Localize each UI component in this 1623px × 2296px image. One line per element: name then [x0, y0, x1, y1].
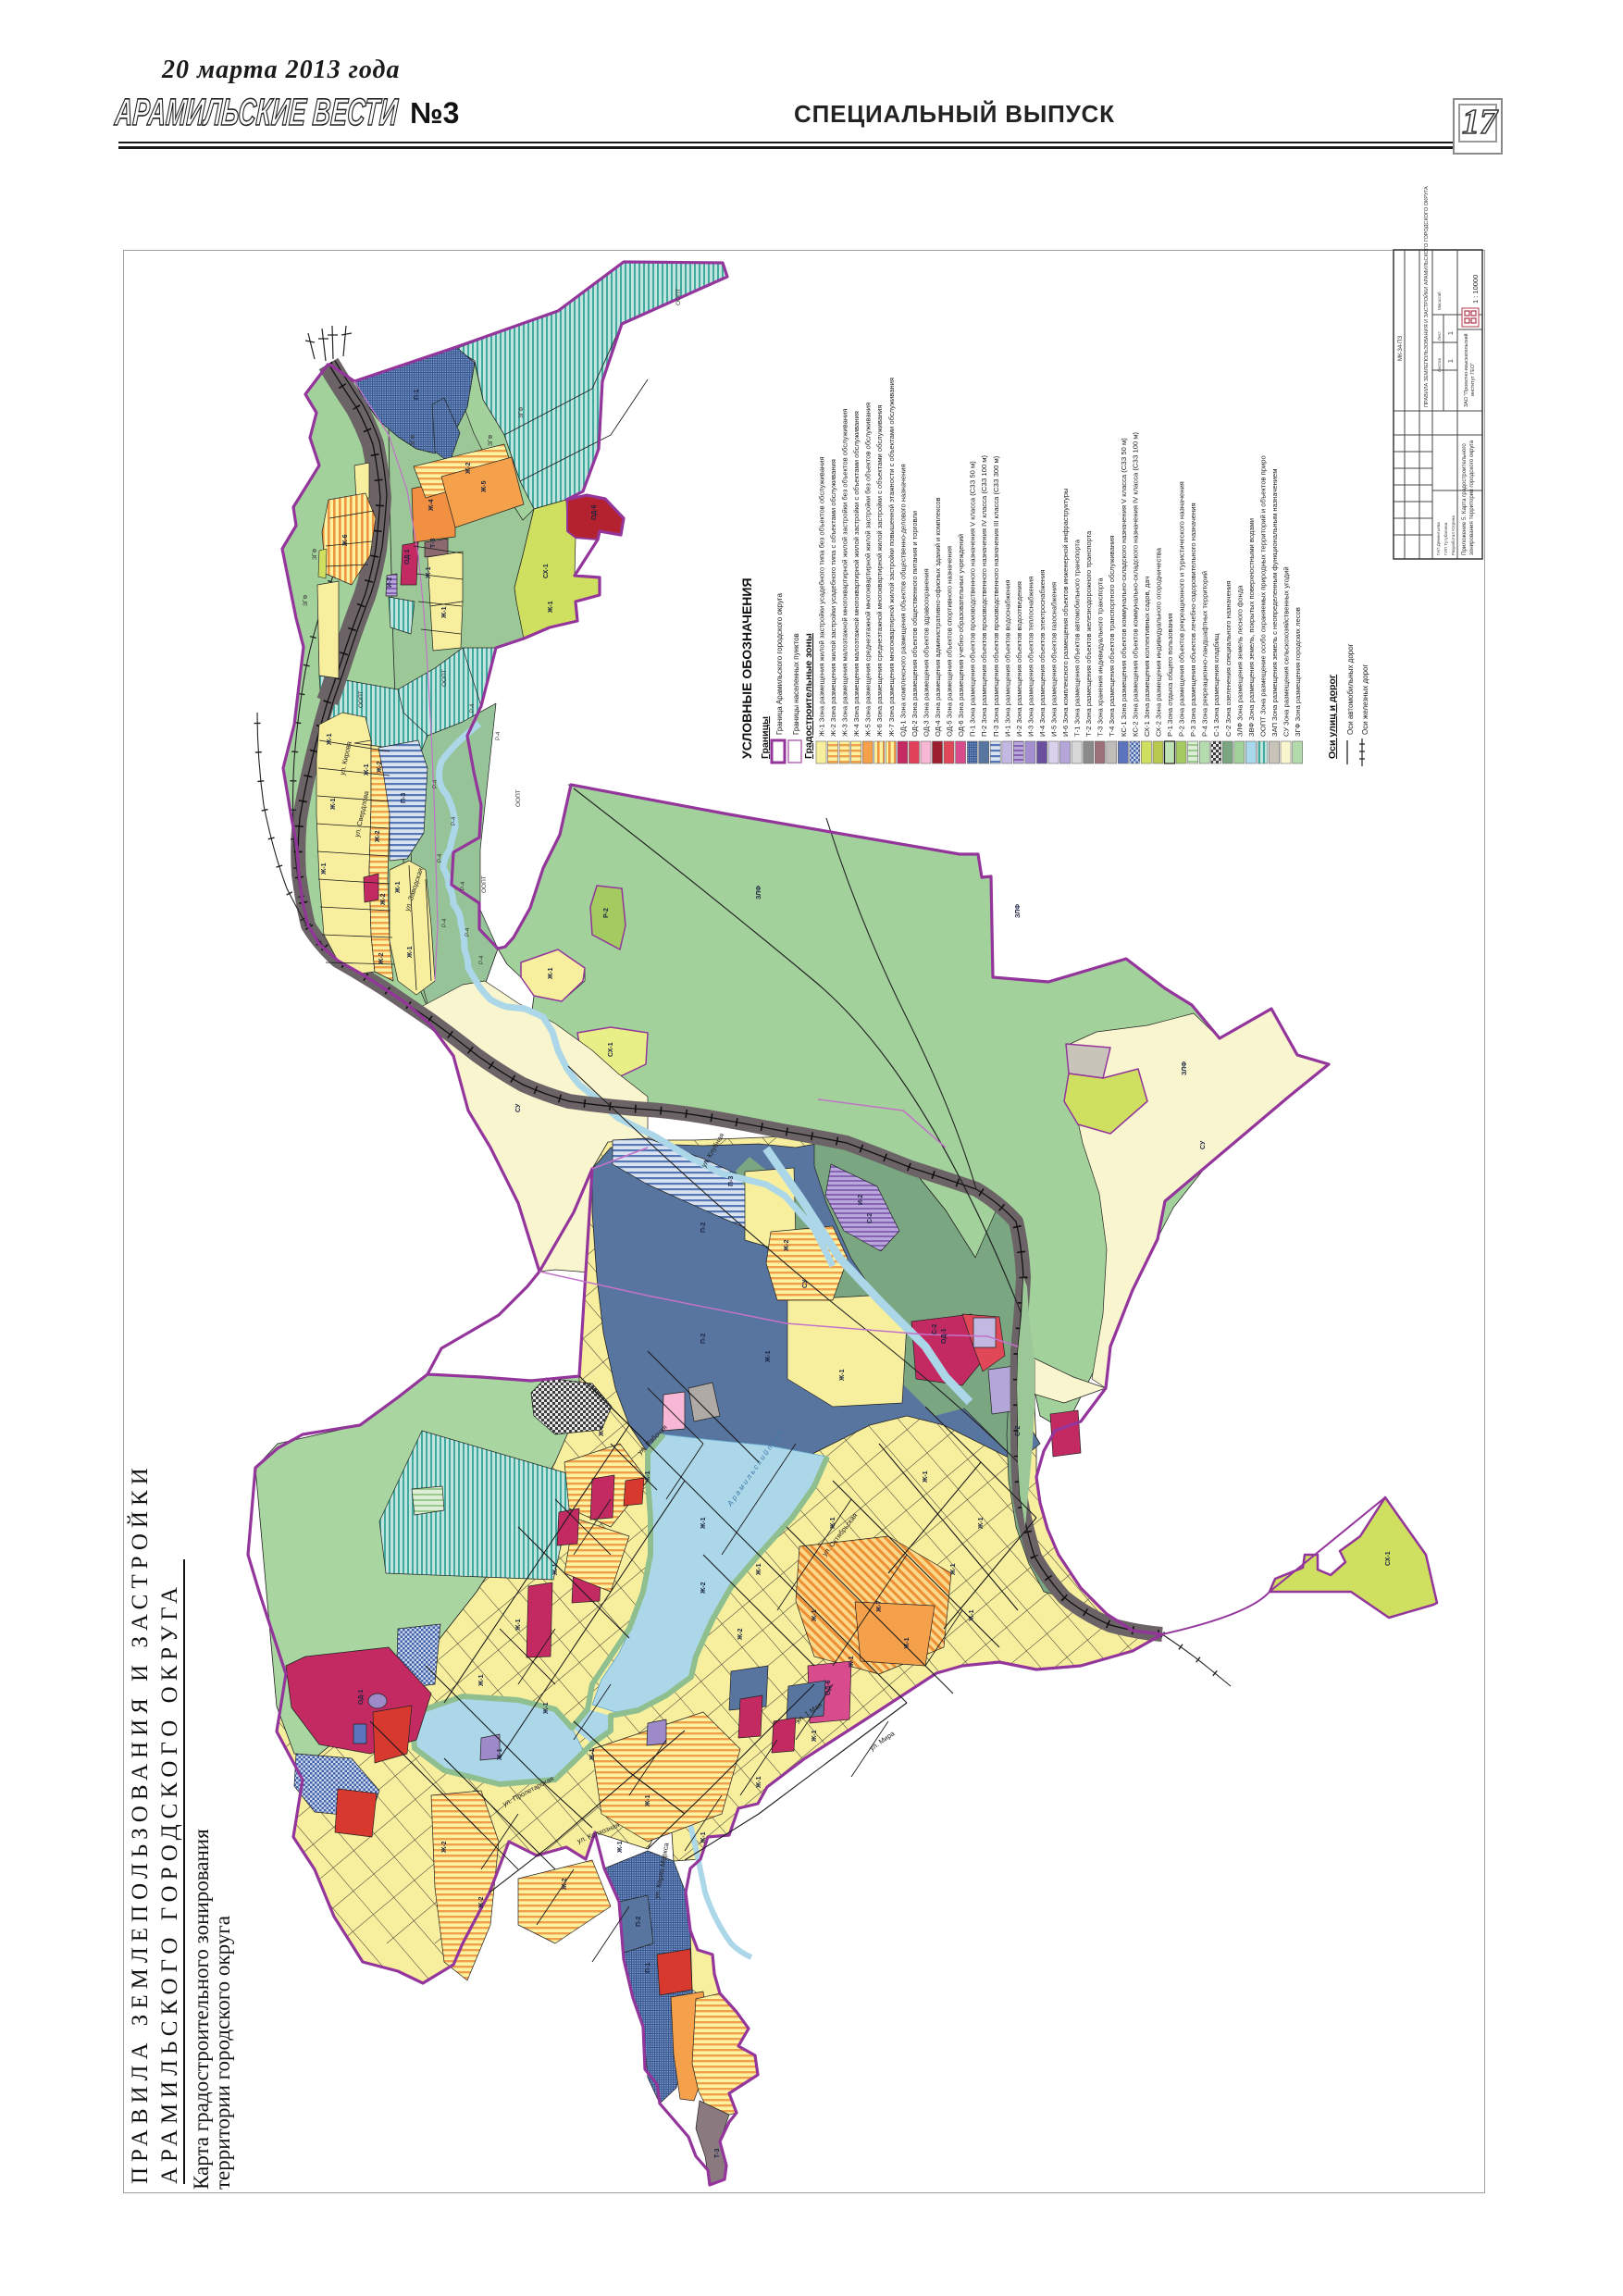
- svg-text:Ж-6: Ж-6: [342, 534, 349, 547]
- svg-text:Ж-4: Ж-4: [428, 499, 435, 512]
- svg-text:Граница Арамильского городског: Граница Арамильского городского округа: [775, 593, 784, 736]
- svg-text:П-1: П-1: [414, 390, 420, 400]
- svg-text:СХ-1: СХ-1: [1385, 1551, 1392, 1566]
- svg-text:Оси автомобильных дорог: Оси автомобильных дорог: [1346, 643, 1355, 735]
- svg-text:ЗЛФ Зона размещения земель лес: ЗЛФ Зона размещения земель лесного фонда: [1235, 585, 1244, 737]
- svg-text:ОД-4 Зона размещения администр: ОД-4 Зона размещения административно-офи…: [934, 497, 942, 737]
- svg-text:ул. Мира: ул. Мира: [868, 1729, 897, 1753]
- svg-text:Т-4 Зона размещения объектов т: Т-4 Зона размещения объектов транспортно…: [1108, 536, 1116, 737]
- svg-text:П-2 Зона размещения объектов: П-2 Зона размещения объектов производств…: [980, 454, 988, 737]
- svg-text:Ж-1: Ж-1: [617, 1841, 624, 1854]
- svg-text:Р-4: Р-4: [433, 779, 439, 788]
- svg-text:П-2: П-2: [700, 1334, 707, 1344]
- svg-text:Ж-2: Ж-2: [737, 1628, 744, 1641]
- svg-text:Ж-1: Ж-1: [645, 1794, 651, 1807]
- svg-text:Ж-1: Ж-1: [599, 1424, 605, 1437]
- svg-text:Ж-1: Ж-1: [765, 1350, 772, 1363]
- svg-text:Ж-2: Ж-2: [375, 830, 381, 843]
- svg-text:КС-2 Зона размещения объектов: КС-2 Зона размещения объектов коммунальн…: [1131, 431, 1139, 737]
- svg-text:ГАП Дементьева: ГАП Дементьева: [1436, 522, 1441, 555]
- svg-text:Ж-1 Зона размещения жилой заст: Ж-1 Зона размещения жилой застройки усад…: [818, 457, 826, 737]
- svg-text:Ж-1: Ж-1: [478, 1674, 485, 1687]
- svg-text:Ж-1: Ж-1: [830, 1517, 836, 1530]
- svg-text:Р-4 Зона рекреационно-ландшафт: Р-4 Зона рекреационно-ландшафтных террит…: [1201, 571, 1209, 737]
- svg-text:Ж-7 Зона размещения многокварт: Ж-7 Зона размещения многоквартирной жило…: [887, 378, 896, 737]
- svg-text:П-2: П-2: [636, 1917, 642, 1927]
- svg-text:1 : 10000: 1 : 10000: [1471, 275, 1480, 304]
- svg-text:Ж-1: Ж-1: [543, 1702, 550, 1715]
- svg-text:П-1: П-1: [645, 1963, 651, 1973]
- svg-text:Ж-1: Ж-1: [395, 881, 402, 894]
- svg-text:Ж-7: Ж-7: [876, 1600, 883, 1613]
- svg-text:КС-1 Зона размещения объектов: КС-1 Зона размещения объектов коммунальн…: [1120, 438, 1128, 737]
- svg-text:Ж-1: Ж-1: [589, 1748, 596, 1761]
- svg-text:Масштаб: Масштаб: [1437, 292, 1442, 310]
- svg-text:ООПТ: ООПТ: [481, 875, 488, 893]
- svg-text:И-2: И-2: [858, 1195, 864, 1205]
- svg-text:П-3 Зона размещения объектов: П-3 Зона размещения объектов производств…: [992, 455, 1000, 737]
- svg-text:Ж-1: Ж-1: [923, 1471, 929, 1483]
- svg-text:ОД-1: ОД-1: [358, 1689, 365, 1705]
- svg-text:ООПТ: ООПТ: [441, 669, 448, 687]
- svg-text:Т-3: Т-3: [430, 538, 437, 548]
- svg-text:Р-1 Зона отдыха общего пользов: Р-1 Зона отдыха общего пользования: [1166, 614, 1174, 737]
- svg-text:Границы населенных пунктов: Границы населенных пунктов: [792, 633, 800, 735]
- svg-text:Лист: Лист: [1437, 330, 1442, 341]
- svg-text:Ж-1: Ж-1: [515, 1619, 522, 1632]
- svg-text:Р-4: Р-4: [465, 927, 471, 937]
- svg-text:Ж-1: Ж-1: [497, 1748, 503, 1761]
- svg-text:И-1 Зона размещения объектов в: И-1 Зона размещения объектов водоснабжен…: [1003, 580, 1011, 737]
- svg-text:Ж-1: Ж-1: [700, 1517, 707, 1530]
- svg-text:С-2: С-2: [867, 1213, 873, 1223]
- svg-text:Ж-1: Ж-1: [969, 1609, 975, 1622]
- svg-text:ЗЛФ: ЗЛФ: [1015, 904, 1022, 918]
- svg-text:Ж-1: Ж-1: [849, 1656, 855, 1669]
- svg-text:П-2: П-2: [700, 1222, 707, 1233]
- svg-text:ОД-2 Зона размещения объектов: ОД-2 Зона размещения объектов общественн…: [911, 511, 919, 737]
- svg-text:Границы: Границы: [760, 716, 771, 759]
- svg-text:Т-2 Зона размещения объектов ж: Т-2 Зона размещения объектов железнодоро…: [1084, 530, 1093, 737]
- svg-text:Ж-1: Ж-1: [364, 763, 370, 776]
- svg-text:Ж-2: Ж-2: [784, 1239, 790, 1252]
- svg-text:ЗГФ: ЗГФ: [312, 549, 318, 560]
- svg-text:Т-3 Зона хранения индивидуальн: Т-3 Зона хранения индивидуального трансп…: [1096, 577, 1105, 737]
- svg-text:СУ Зона размещения сельскохозя: СУ Зона размещения сельскохозяйственных …: [1282, 566, 1291, 737]
- svg-text:И-3 Зона размещения объектов т: И-3 Зона размещения объектов теплоснабже…: [1026, 577, 1035, 737]
- svg-text:ОД-3 Зона размещения объектов: ОД-3 Зона размещения объектов здравоохра…: [923, 568, 931, 737]
- svg-text:институт ГЕО": институт ГЕО": [1470, 363, 1476, 396]
- svg-text:ЗАО "Проектно-изыскательский: ЗАО "Проектно-изыскательский: [1463, 333, 1469, 407]
- svg-text:Ж-3 Зона размещения малоэтажно: Ж-3 Зона размещения малоэтажной многоква…: [841, 409, 849, 737]
- svg-text:Разработал Югрина: Разработал Югрина: [1451, 515, 1456, 555]
- svg-text:Т-1 Зона размещения объектов а: Т-1 Зона размещения объектов автомобильн…: [1073, 539, 1082, 737]
- svg-text:С-2 Зона озеленения специально: С-2 Зона озеленения специального назначе…: [1224, 581, 1233, 737]
- svg-text:ЗАП Зона размещения земель с н: ЗАП Зона размещения земель с неопределен…: [1270, 469, 1279, 737]
- svg-text:Ж-1: Ж-1: [839, 1369, 846, 1382]
- svg-text:ПРАВИЛА ЗЕМЛЕПОЛЬЗОВАНИЯ И ЗАС: ПРАВИЛА ЗЕМЛЕПОЛЬЗОВАНИЯ И ЗАСТРОЙКИ АРА…: [1422, 186, 1430, 407]
- svg-text:И-6 Зона комплексного размещен: И-6 Зона комплексного размещения объекто…: [1061, 489, 1070, 737]
- svg-text:УСЛОВНЫЕ ОБОЗНАЧЕНИЯ: УСЛОВНЫЕ ОБОЗНАЧЕНИЯ: [739, 577, 754, 759]
- svg-text:Ж-1: Ж-1: [321, 863, 328, 875]
- svg-text:Р-4: Р-4: [461, 881, 466, 890]
- svg-text:И-5 Зона размещения объектов г: И-5 Зона размещения объектов газоснабжен…: [1050, 582, 1059, 737]
- svg-text:С-2: С-2: [932, 1324, 938, 1334]
- svg-text:Ж-5: Ж-5: [481, 480, 488, 493]
- svg-text:Т-3: Т-3: [714, 2148, 721, 2158]
- svg-text:МК-34-ПЗ: МК-34-ПЗ: [1398, 336, 1404, 361]
- svg-text:Ж-6 Зона размещения среднеэтаж: Ж-6 Зона размещения среднеэтажной многок…: [875, 404, 884, 737]
- svg-text:Ж-2 Зона размещения жилой заст: Ж-2 Зона размещения жилой застройки усад…: [829, 459, 837, 737]
- svg-text:Ж-1: Ж-1: [645, 1471, 651, 1483]
- svg-text:С-1 Зона размещения кладбищ: С-1 Зона размещения кладбищ: [1212, 633, 1220, 737]
- svg-text:Р-4: Р-4: [470, 703, 476, 713]
- svg-text:Ж-1: Ж-1: [426, 566, 432, 579]
- svg-text:ЗГФ: ЗГФ: [518, 407, 525, 418]
- svg-text:ЗЛФ: ЗЛФ: [1182, 1061, 1188, 1075]
- svg-text:Р-4: Р-4: [442, 918, 448, 927]
- svg-text:ЗГФ: ЗГФ: [303, 595, 309, 606]
- svg-text:СХ-2 Зона размещения индивидуа: СХ-2 Зона размещения индивидуального ого…: [1155, 547, 1163, 737]
- svg-text:Ж-1: Ж-1: [756, 1776, 762, 1789]
- svg-text:Ж-1: Ж-1: [904, 1637, 911, 1650]
- svg-text:С-2: С-2: [1015, 1426, 1022, 1436]
- svg-text:Р-4: Р-4: [496, 731, 502, 740]
- svg-text:Ж-2: Ж-2: [441, 1841, 448, 1854]
- svg-text:Градостроительные зоны: Градостроительные зоны: [803, 633, 814, 759]
- svg-text:ОД-6: ОД-6: [591, 504, 598, 520]
- svg-text:ОД-1: ОД-1: [941, 1328, 948, 1344]
- svg-text:И-2 Зона размещения объектов в: И-2 Зона размещения объектов водоотведен…: [1015, 581, 1023, 737]
- svg-text:ГИП Тутубалина: ГИП Тутубалина: [1443, 522, 1448, 555]
- svg-text:Ж-1: Ж-1: [811, 1730, 818, 1743]
- svg-text:ЗГФ Зона размещения городских: ЗГФ Зона размещения городских лесов: [1294, 607, 1302, 737]
- svg-text:Ж-2: Ж-2: [380, 893, 387, 906]
- svg-text:Ж-1: Ж-1: [441, 606, 448, 619]
- svg-text:СУ: СУ: [1200, 1140, 1207, 1149]
- svg-text:Ж-1: Ж-1: [950, 1563, 957, 1576]
- svg-text:СХ-1: СХ-1: [543, 564, 550, 578]
- svg-text:ОД-1: ОД-1: [404, 549, 411, 565]
- svg-text:Приложение 5. Карта градострои: Приложение 5. Карта градостроительного: [1461, 443, 1468, 555]
- svg-text:СХ-1: СХ-1: [608, 1042, 614, 1057]
- svg-text:Ж-1: Ж-1: [548, 601, 554, 614]
- svg-text:Р-4: Р-4: [438, 853, 443, 863]
- svg-text:П-1 Зона размещения объектов п: П-1 Зона размещения объектов производств…: [969, 461, 977, 737]
- svg-text:П-3: П-3: [728, 1176, 735, 1186]
- svg-text:Р-2: Р-2: [603, 908, 610, 918]
- svg-text:Ж-1: Ж-1: [811, 1609, 818, 1622]
- svg-text:ООПТ: ООПТ: [675, 288, 682, 305]
- svg-text:Ж-1: Ж-1: [700, 1831, 707, 1844]
- svg-text:Ж-1: Ж-1: [552, 1563, 559, 1576]
- svg-text:ОД-6 Зона размещения учебно-об: ОД-6 Зона размещения учебно-образователь…: [957, 534, 965, 737]
- svg-text:Ж-2: Ж-2: [377, 761, 383, 774]
- svg-text:Ж-1: Ж-1: [327, 733, 333, 746]
- svg-text:Ж-2: Ж-2: [562, 1878, 568, 1891]
- svg-text:1: 1: [1448, 331, 1455, 335]
- svg-text:Ж-1: Ж-1: [330, 798, 337, 811]
- svg-text:Ж-2: Ж-2: [478, 1896, 485, 1909]
- svg-text:ЗГФ: ЗГФ: [488, 435, 494, 446]
- svg-text:Ж-4 Зона размещения малоэтажно: Ж-4 Зона размещения малоэтажной многоква…: [852, 411, 861, 737]
- svg-text:И-4 Зона размещения объектов э: И-4 Зона размещения объектов электроснаб…: [1038, 570, 1047, 737]
- svg-text:СУ: СУ: [802, 1279, 809, 1288]
- svg-text:Ж-1: Ж-1: [548, 967, 554, 980]
- svg-text:ООПТ: ООПТ: [358, 690, 365, 708]
- svg-text:Ж-2: Ж-2: [378, 952, 385, 965]
- svg-text:ОД-1 Зона комплексного размеще: ОД-1 Зона комплексного размещения объект…: [898, 464, 907, 737]
- svg-text:Р-4: Р-4: [452, 816, 457, 825]
- svg-text:1: 1: [1448, 359, 1455, 363]
- svg-text:Ж-1: Ж-1: [407, 946, 414, 959]
- svg-text:Р-3 Зона размещения объектов л: Р-3 Зона размещения объектов лечебно-озд…: [1189, 503, 1197, 737]
- svg-text:Оси железных дорог: Оси железных дорог: [1361, 664, 1369, 735]
- svg-text:ОД-6: ОД-6: [825, 1680, 832, 1695]
- svg-text:ЗЛФ: ЗЛФ: [756, 886, 762, 900]
- svg-text:зонирования территории городск: зонирования территории городского округа: [1468, 440, 1475, 555]
- svg-text:Ж-2: Ж-2: [465, 462, 472, 475]
- svg-text:И-2: И-2: [387, 577, 393, 588]
- svg-text:ЗВФ Зона размещения земель, по: ЗВФ Зона размещения земель, покрытых пов…: [1247, 518, 1256, 737]
- svg-text:Р-2 Зона размещения объектов р: Р-2 Зона размещения объектов рекреационн…: [1178, 481, 1186, 737]
- svg-text:Листов: Листов: [1437, 358, 1442, 372]
- svg-text:Ж-5 Зона размещения среднеэтаж: Ж-5 Зона размещения среднеэтажной многок…: [864, 403, 873, 737]
- svg-text:Р-4: Р-4: [479, 955, 485, 964]
- svg-text:СХ-1 Зона размещения коллектив: СХ-1 Зона размещения коллективных садов,…: [1143, 577, 1151, 737]
- svg-text:Ж-1: Ж-1: [756, 1563, 762, 1576]
- svg-text:ООПТ Зона размещение особо охр: ООПТ Зона размещение особо охраняемых пр…: [1258, 455, 1267, 737]
- svg-text:Ж-1: Ж-1: [978, 1517, 985, 1530]
- svg-text:Оси улиц и дорог: Оси улиц и дорог: [1327, 674, 1338, 759]
- svg-text:ООПТ: ООПТ: [515, 789, 522, 807]
- svg-text:П-3: П-3: [401, 793, 407, 803]
- svg-text:ЗГФ: ЗГФ: [410, 435, 416, 446]
- svg-text:Ж-2: Ж-2: [700, 1582, 707, 1595]
- svg-text:СУ: СУ: [515, 1103, 522, 1112]
- svg-text:ОД-5 Зона размещения объектов: ОД-5 Зона размещения объектов спортивног…: [946, 546, 954, 737]
